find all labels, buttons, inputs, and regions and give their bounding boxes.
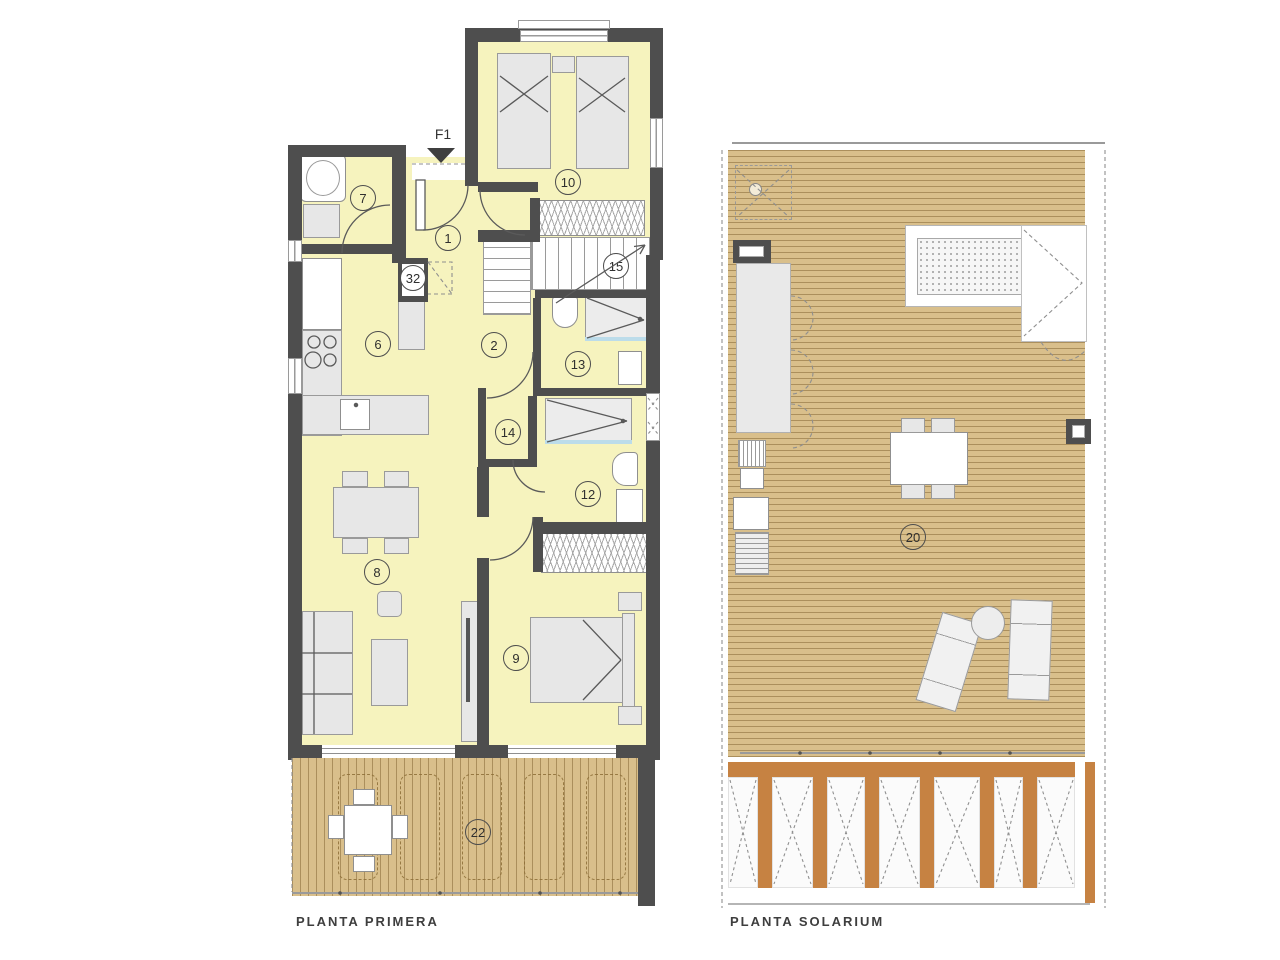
round-side-table [971, 606, 1005, 640]
pergola-post [1023, 777, 1037, 888]
pergola-post [865, 777, 879, 888]
stair-bulkhead-window [739, 246, 764, 257]
solarium-chair [901, 484, 925, 499]
pergola-panel [879, 777, 920, 888]
outdoor-kitchen-shelf [735, 532, 769, 575]
floor-plan-sheet: F1 PLANTA PRIMERA 7 1 10 32 15 6 2 13 14… [0, 0, 1280, 960]
barbecue-grill [738, 440, 766, 467]
pergola-post [758, 777, 772, 888]
solarium-chair [901, 418, 925, 433]
pergola-post [813, 777, 827, 888]
outdoor-sink [740, 468, 764, 489]
solarium-railing-line [740, 752, 1085, 754]
pergola-panel [1037, 777, 1075, 888]
shade-structure [1021, 225, 1087, 342]
pergola-panel [827, 777, 865, 888]
pergola-panel [728, 777, 758, 888]
solarium-chair [931, 418, 955, 433]
vent [1072, 425, 1085, 438]
pergola-panel [772, 777, 813, 888]
pergola-panel [934, 777, 980, 888]
pergola-post [920, 777, 934, 888]
plunge-pool [917, 238, 1023, 295]
plan-planta-solarium: PLANTA SOLARIUM 20 [0, 0, 1280, 960]
solarium-table [890, 432, 968, 485]
room-number-20: 20 [900, 524, 926, 550]
solarium-boundary-line [732, 142, 1105, 144]
pergola-base-line [728, 903, 1090, 905]
pergola-panel [994, 777, 1023, 888]
solarium-chair [931, 484, 955, 499]
outdoor-counter [733, 497, 769, 530]
plan-title: PLANTA SOLARIUM [730, 914, 884, 929]
sun-lounger [1007, 599, 1052, 700]
room-number-text: 20 [906, 530, 920, 545]
stair-bulkhead [736, 263, 791, 433]
pergola-post [980, 777, 994, 888]
pergola-side-post [1085, 762, 1095, 903]
outdoor-shower-head [749, 183, 762, 196]
pergola-beam [728, 762, 1075, 777]
overhead-pergola-outline [735, 165, 792, 220]
